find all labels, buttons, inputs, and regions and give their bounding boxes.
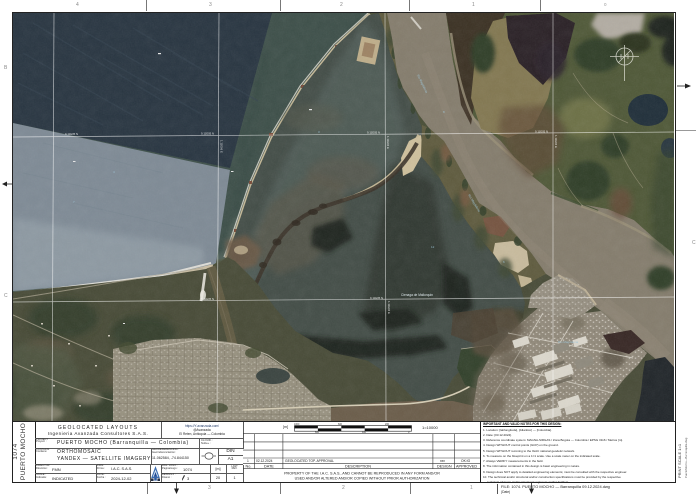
svg-text:GEOLOCATED TOP. APPROVAL: GEOLOCATED TOP. APPROVAL xyxy=(285,459,334,463)
svg-text:Cienaga de Mallorquin: Cienaga de Mallorquin xyxy=(401,293,433,297)
svg-text:DATE: DATE xyxy=(264,464,274,468)
svg-text:02.12.2024: 02.12.2024 xyxy=(256,459,273,463)
svg-text:1.11E06 E: 1.11E06 E xyxy=(554,135,558,148)
svg-text:1.11E06 E: 1.11E06 E xyxy=(386,136,390,149)
svg-text:9.11E05 N: 9.11E05 N xyxy=(65,132,78,136)
svg-text:Rio Magdalena: Rio Magdalena xyxy=(558,340,579,344)
svg-text:1: 1 xyxy=(247,459,249,463)
svg-text:9.11E05 N: 9.11E05 N xyxy=(367,131,380,135)
svg-text:1.11E06 E: 1.11E06 E xyxy=(387,301,391,314)
svg-text:9.11E05 N: 9.11E05 N xyxy=(201,297,214,301)
svg-text:APPROVED: APPROVED xyxy=(456,464,477,468)
svg-text:USED AND/OR ALTERED AND/OR COP: USED AND/OR ALTERED AND/OR COPIED WITHOU… xyxy=(295,476,430,480)
svg-text:DESCRIPTION: DESCRIPTION xyxy=(345,464,371,468)
svg-text:9.11E05 N: 9.11E05 N xyxy=(370,296,383,300)
svg-text:PROPERTY OF THE I.A.C. S.A.S.,: PROPERTY OF THE I.A.C. S.A.S., AND CANNO… xyxy=(284,471,440,475)
svg-text:No.: No. xyxy=(246,464,252,468)
svg-text:xxx: xxx xyxy=(440,459,445,463)
svg-text:9.11E05 N: 9.11E05 N xyxy=(535,130,548,134)
svg-text:9.11E05 N: 9.11E05 N xyxy=(201,132,214,136)
svg-text:OK:IG: OK:IG xyxy=(461,459,471,463)
svg-text:1.11E06 E: 1.11E06 E xyxy=(220,140,224,153)
svg-text:12: 12 xyxy=(431,245,435,249)
svg-text:DESIGN: DESIGN xyxy=(437,464,452,468)
